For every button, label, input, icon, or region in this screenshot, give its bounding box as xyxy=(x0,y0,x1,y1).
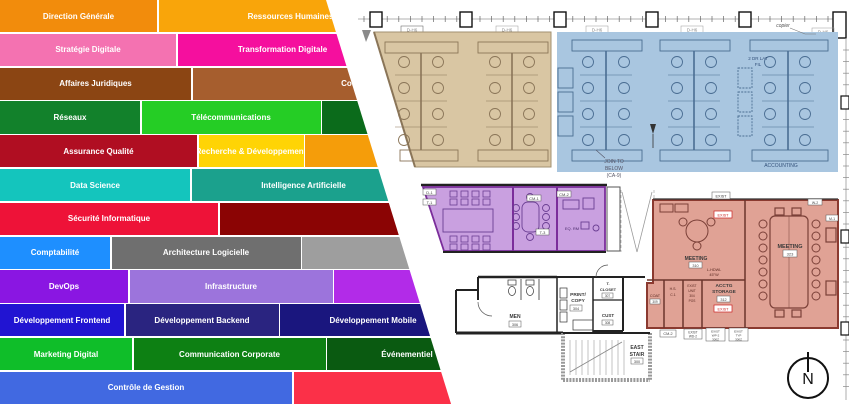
lateral-file-note: FIL xyxy=(755,62,762,67)
c1-label: C.1 xyxy=(670,293,676,297)
unit-note: POS xyxy=(689,299,696,303)
tag: 300Z xyxy=(735,337,742,341)
service-room-walls xyxy=(456,277,645,333)
print-label: PRINT/ xyxy=(570,292,586,298)
cust-label: CUST xyxy=(602,313,615,318)
meeting-small-label: MEETING xyxy=(685,256,708,262)
column-markers-right xyxy=(841,96,849,335)
revision-triangle-marker xyxy=(362,30,371,42)
note-line: JOIN TO xyxy=(604,159,624,165)
exist-tag: EXIST xyxy=(716,194,728,198)
room-number: 304 xyxy=(573,307,579,311)
stair-label: EAST xyxy=(630,345,643,351)
shaft xyxy=(607,187,620,251)
unit-note: 304 xyxy=(689,294,695,298)
room-number: 307 xyxy=(605,294,611,298)
exist-tag: EXIST xyxy=(718,307,730,311)
accounting-label: ACCOUNTING xyxy=(764,163,798,169)
room-number: 308 xyxy=(605,321,611,325)
acctg-label: STORAGE xyxy=(712,289,736,295)
tag: T-1 xyxy=(427,200,434,205)
tag: D-1 xyxy=(426,190,433,195)
tag: CM-2 xyxy=(663,332,672,336)
compass-n-label: N xyxy=(802,371,814,388)
north-compass: N xyxy=(788,352,828,398)
room-number: 300 xyxy=(634,360,640,364)
tag: T-3 xyxy=(540,230,547,235)
tag: M-1 xyxy=(829,217,835,221)
floor-plan: D-H6 D-H6 D-H6 D-H6 D-H6 2 DR LAT FI xyxy=(0,0,849,407)
closet-label: T. xyxy=(606,281,609,286)
unit-note: EXIST xyxy=(687,284,696,288)
east-stair: EAST STAIR 300 xyxy=(563,333,650,380)
men-label: MEN xyxy=(509,314,521,320)
closet-room: T. CLOSET 307 xyxy=(596,265,617,298)
screenshot-canvas: Direction GénéraleRessources HumainesStr… xyxy=(0,0,849,407)
copier-note: copier xyxy=(776,23,790,29)
meeting-large-label: MEETING xyxy=(777,244,802,250)
exist-tag: EXIST xyxy=(718,213,730,217)
print-copy-room: PRINT/ COPY 304 xyxy=(560,288,593,330)
closet-label: CLOSET xyxy=(600,287,617,292)
lateral-file-note: 2 DR LAT xyxy=(748,56,768,61)
room-number: 306 xyxy=(512,323,518,327)
tag: W-2 xyxy=(812,201,818,205)
tag: WD-2 xyxy=(689,335,697,339)
men-room: MEN 306 xyxy=(478,279,539,327)
room-number: 323 xyxy=(787,251,794,256)
room-number: 312 xyxy=(720,298,726,302)
grid-ticks-top xyxy=(364,16,828,22)
zone-meeting-red[interactable] xyxy=(647,200,838,328)
hardware-note: 45°W xyxy=(709,273,719,277)
acctg-label: ACCTG xyxy=(715,283,732,289)
zone-open-office-tan[interactable] xyxy=(374,32,551,167)
tag: CM-2 xyxy=(559,192,570,197)
corridor-brace xyxy=(621,190,654,252)
room-number: 310 xyxy=(692,264,698,268)
cust-room: CUST 308 xyxy=(602,313,615,325)
unit-note: UNIT xyxy=(688,289,695,293)
note-line: (CA-9) xyxy=(607,173,622,179)
stair-label: STAIR xyxy=(630,352,645,358)
grid-tag: D-H6 xyxy=(592,28,603,33)
hardware-note: L-HDWL xyxy=(707,268,722,272)
wall-finish-tags: CM-2 EXIST WD-2 EXIST WP-2 300Z EXIST TY… xyxy=(660,328,748,341)
copy-label: COPY xyxy=(571,298,585,304)
tag: CM-1 xyxy=(529,196,540,201)
coat-label: COAT xyxy=(650,294,661,298)
note-line: BELOW xyxy=(605,166,623,172)
hs-label: H.S. xyxy=(670,287,677,291)
grid-tag: D-H6 xyxy=(687,28,698,33)
eq-room-label: EQ. RM xyxy=(565,226,579,231)
zone-open-office-blue[interactable] xyxy=(557,32,838,172)
tag: 300Z xyxy=(712,337,719,341)
room-number: 309 xyxy=(652,300,658,304)
